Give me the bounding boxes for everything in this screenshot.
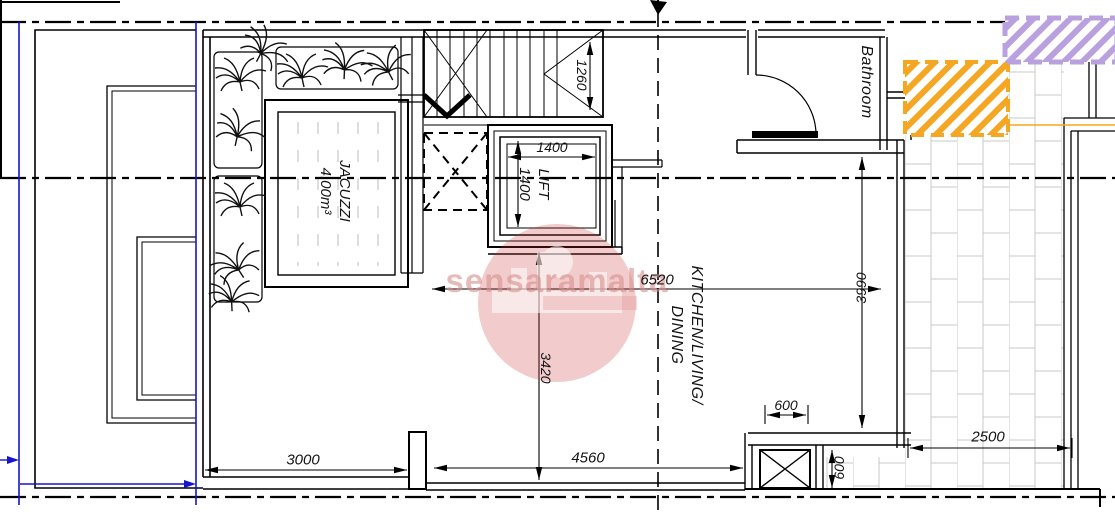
jacuzzi-label-line2: 4.00m³ [315,160,334,222]
floor-plan-canvas: sensaramalta 1260 1400 LIFT 1400 JACUZZI… [0,0,1115,516]
kitchen-label-line1: KITCHEN/LIVING/ [686,265,706,404]
dimension-lift-width: 1400 [536,139,567,155]
dimension-duct-depth: 600 [831,456,847,479]
stair-direction-arrow [424,95,470,116]
jacuzzi-label: JACUZZI 4.00m³ [315,160,353,222]
dimension-terrace-depth: 3990 [853,272,869,303]
section-line [650,0,667,516]
lift-label: LIFT 1400 [514,167,552,200]
jacuzzi-label-line1: JACUZZI [334,160,353,222]
shaft-void [424,133,487,210]
lift-label-line2: 1400 [514,167,533,200]
lift-label-line1: LIFT [533,167,552,200]
floor-plan-drawing [0,0,1115,516]
bathroom-label: Bathroom [857,45,875,118]
dimension-stairs-width: 1260 [574,59,590,90]
site-boundary-blue [0,22,196,505]
bathroom-door [748,30,818,138]
purple-highlight-area [1005,18,1115,62]
door-leaf [752,131,818,138]
dimension-living-depth: 3420 [538,352,554,383]
dimension-jacuzzi-terrace-width: 3000 [286,452,319,469]
planters [205,19,415,315]
watermark-text: sensaramalta [446,262,669,300]
dimension-terrace-width: 2500 [971,429,1004,446]
dimension-duct-width: 600 [774,397,797,413]
dimension-living-width: 4560 [571,450,604,467]
adjacent-roof-outline [0,0,203,488]
dimension-living-length: 6520 [640,272,673,289]
watermark-logo [478,224,637,382]
